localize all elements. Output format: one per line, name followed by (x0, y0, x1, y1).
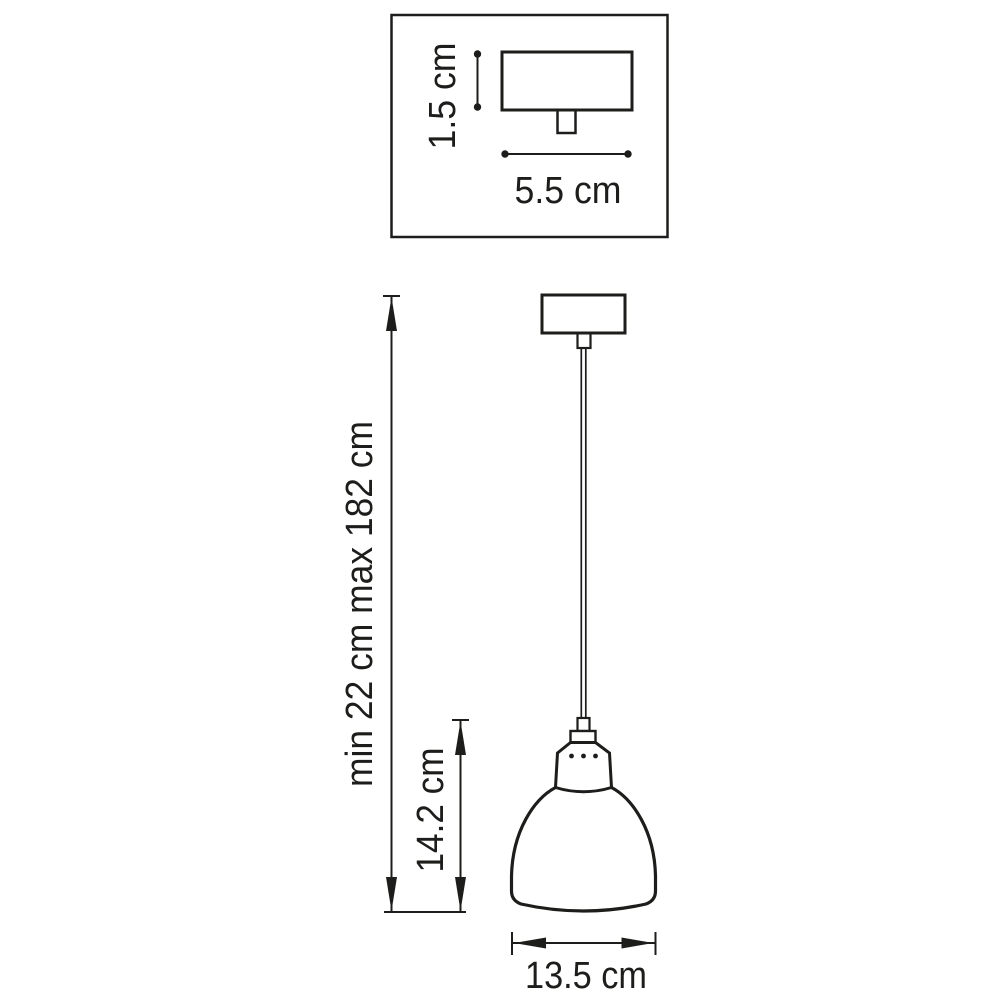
shade-height-dimension: 14.2 cm (410, 720, 469, 911)
socket-vent-dot (593, 754, 598, 759)
dimension-dot (501, 150, 508, 157)
arrow-left-icon (514, 938, 546, 949)
shade-height-label: 14.2 cm (410, 748, 452, 873)
diagram-svg: 1.5 cm 5.5 cm (0, 0, 1000, 1000)
canopy-detail-body (502, 52, 632, 110)
cord-grip (578, 718, 590, 731)
lamp-socket (556, 743, 612, 792)
suspension-height-label: min 22 cm max 182 cm (339, 421, 381, 787)
ceiling-canopy (542, 295, 625, 333)
canopy-width-dimension: 5.5 cm (501, 150, 631, 212)
canopy-detail-inset: 1.5 cm 5.5 cm (392, 15, 668, 237)
shade-width-dimension: 13.5 cm (512, 932, 656, 997)
arrow-up-icon (386, 297, 397, 331)
lamp-dimension-diagram: 1.5 cm 5.5 cm (0, 0, 1000, 1000)
pendant-lamp-side-view (512, 295, 656, 911)
arrow-down-icon (455, 877, 466, 911)
canopy-height-label: 1.5 cm (422, 43, 464, 150)
canopy-height-dimension: 1.5 cm (422, 43, 481, 150)
arrow-right-icon (622, 938, 654, 949)
dimension-dot (474, 103, 481, 110)
dimension-dot (474, 50, 481, 57)
socket-cap (571, 731, 596, 743)
socket-vent-dot (581, 754, 586, 759)
dimension-dot (624, 150, 631, 157)
lamp-shade (512, 788, 656, 912)
arrow-up-icon (455, 721, 466, 755)
canopy-connector (578, 333, 591, 348)
socket-vent-dot (569, 754, 574, 759)
arrow-down-icon (386, 877, 397, 911)
canopy-width-label: 5.5 cm (515, 170, 622, 212)
shade-width-label: 13.5 cm (525, 955, 647, 997)
canopy-detail-stem (558, 110, 576, 133)
